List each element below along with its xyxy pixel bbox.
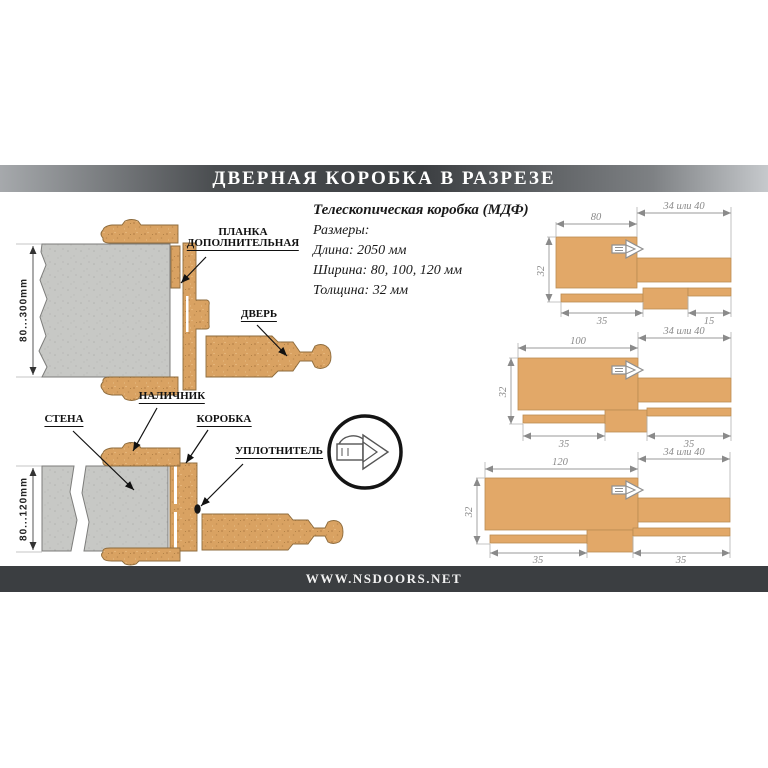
dim-thickness: 32 [464, 506, 475, 518]
dim-groove-left: 35 [532, 555, 544, 566]
casing-leader-arrow [133, 408, 157, 451]
dim-extension: 34 или 40 [662, 447, 705, 458]
wall-block [39, 244, 170, 377]
wall-depth-label-top: 80...300mm [19, 278, 30, 342]
profile-bottom-right-strip [633, 528, 730, 536]
wall-depth-label-bottom: 80...120mm [19, 477, 30, 541]
casing-front [101, 443, 180, 467]
dim-groove-left: 35 [558, 439, 570, 450]
profile-bottom-left-strip [561, 294, 643, 302]
profile-extension-strip [637, 258, 731, 282]
frame-profile-100: 34 или 40 100 32 35 35 [498, 326, 731, 450]
website-url: WWW.NSDOORS.NET [306, 571, 462, 587]
profile-bottom-right-strip [647, 408, 731, 416]
label-door: ДВЕРЬ [241, 309, 277, 322]
telescopic-groove-lower [174, 512, 177, 548]
door-seal [194, 504, 200, 514]
profile-extension-strip [638, 498, 730, 522]
door-leaf [202, 514, 343, 550]
label-seal: УПЛОТНИТЕЛЬ [235, 446, 323, 459]
label-casing: НАЛИЧНИК [139, 391, 205, 404]
dim-groove-right: 15 [704, 316, 715, 327]
seal-detail-magnifier [329, 416, 401, 488]
frame-leader-arrow [186, 430, 208, 463]
telescopic-groove-upper [174, 466, 177, 504]
profile-extension-strip [638, 378, 731, 402]
dim-groove-left: 35 [596, 316, 608, 327]
wall-block-left [42, 466, 77, 551]
label-extension-plank: ПЛАНКА ДОПОЛНИТЕЛЬНАЯ [187, 227, 299, 251]
frame-profile-120: 34 или 40 120 32 35 35 [464, 447, 730, 566]
dim-extension: 34 или 40 [662, 326, 705, 337]
dim-thickness: 32 [498, 386, 509, 398]
frame-profile-80: 34 или 40 80 32 35 15 [536, 201, 731, 327]
profile-center-web [605, 410, 647, 432]
dim-groove-right: 35 [675, 555, 687, 566]
dim-width: 80 [591, 212, 602, 223]
dim-thickness: 32 [536, 265, 547, 277]
dim-width: 120 [552, 457, 569, 468]
extension-plank [171, 246, 180, 288]
poster-door-frame-cross-section: ДВЕРНАЯ КОРОБКА В РАЗРЕЗЕ Телескопическа… [0, 0, 768, 768]
label-wall: СТЕНА [44, 414, 83, 427]
seal-leader-arrow [201, 464, 243, 506]
profile-center-web [643, 288, 688, 309]
profile-bottom-left-strip [490, 535, 587, 543]
seal-profile-base [337, 444, 363, 460]
label-frame: КОРОБКА [197, 414, 252, 427]
diagram-canvas: 34 или 40 80 32 35 15 34 или 40 100 32 3… [0, 0, 768, 768]
dim-width: 100 [570, 336, 587, 347]
profile-bottom-left-strip [523, 415, 605, 423]
section-view-thin-wall [16, 408, 343, 565]
profile-bottom-right-strip [688, 288, 731, 296]
wall-block-right [82, 466, 168, 551]
casing-back [102, 548, 181, 565]
dim-extension: 34 или 40 [662, 201, 705, 212]
telescopic-groove [186, 296, 189, 332]
footer-bar: WWW.NSDOORS.NET [0, 566, 768, 592]
casing-front [101, 220, 178, 244]
profile-center-web [587, 530, 633, 552]
label-extension-plank-line2: ДОПОЛНИТЕЛЬНАЯ [187, 238, 299, 251]
door-leaf [206, 336, 331, 377]
